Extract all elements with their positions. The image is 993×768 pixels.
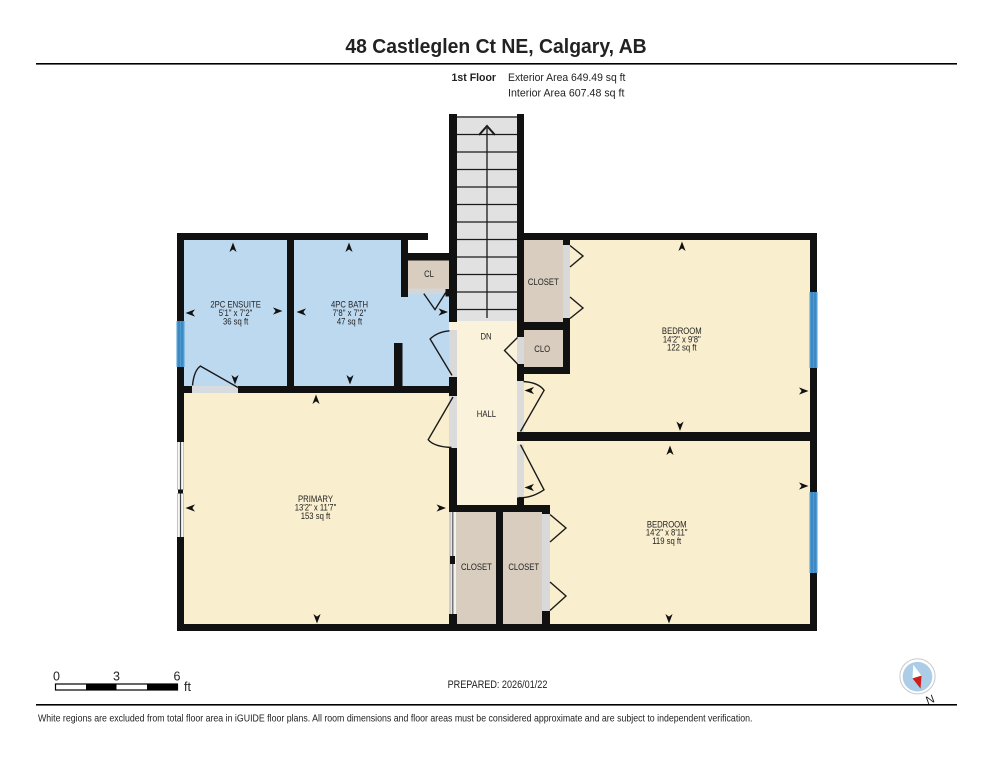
svg-text:119 sq ft: 119 sq ft bbox=[652, 535, 681, 546]
svg-text:47 sq ft: 47 sq ft bbox=[337, 316, 363, 327]
svg-text:HALL: HALL bbox=[477, 408, 496, 419]
svg-text:0: 0 bbox=[53, 670, 60, 684]
svg-text:ft: ft bbox=[184, 680, 191, 694]
svg-text:CLO: CLO bbox=[534, 343, 550, 354]
svg-text:CLOSET: CLOSET bbox=[508, 561, 539, 572]
svg-text:CLOSET: CLOSET bbox=[528, 276, 559, 287]
svg-text:Interior Area 607.48 sq ft: Interior Area 607.48 sq ft bbox=[508, 87, 624, 99]
svg-text:48 Castleglen Ct NE, Calgary,: 48 Castleglen Ct NE, Calgary, AB bbox=[345, 36, 646, 59]
svg-text:DN: DN bbox=[480, 331, 491, 342]
svg-text:CL: CL bbox=[424, 268, 434, 279]
svg-text:36 sq ft: 36 sq ft bbox=[223, 316, 249, 327]
svg-text:1st Floor: 1st Floor bbox=[452, 71, 497, 83]
svg-text:153 sq ft: 153 sq ft bbox=[301, 510, 331, 521]
svg-text:122 sq ft: 122 sq ft bbox=[667, 342, 697, 353]
svg-text:Exterior Area 649.49 sq ft: Exterior Area 649.49 sq ft bbox=[508, 71, 625, 83]
svg-text:6: 6 bbox=[174, 670, 181, 684]
svg-text:PREPARED: 2026/01/22: PREPARED: 2026/01/22 bbox=[448, 679, 548, 691]
svg-text:CLOSET: CLOSET bbox=[461, 561, 492, 572]
svg-text:White regions are excluded fro: White regions are excluded from total fl… bbox=[38, 713, 752, 725]
svg-text:3: 3 bbox=[113, 670, 120, 684]
